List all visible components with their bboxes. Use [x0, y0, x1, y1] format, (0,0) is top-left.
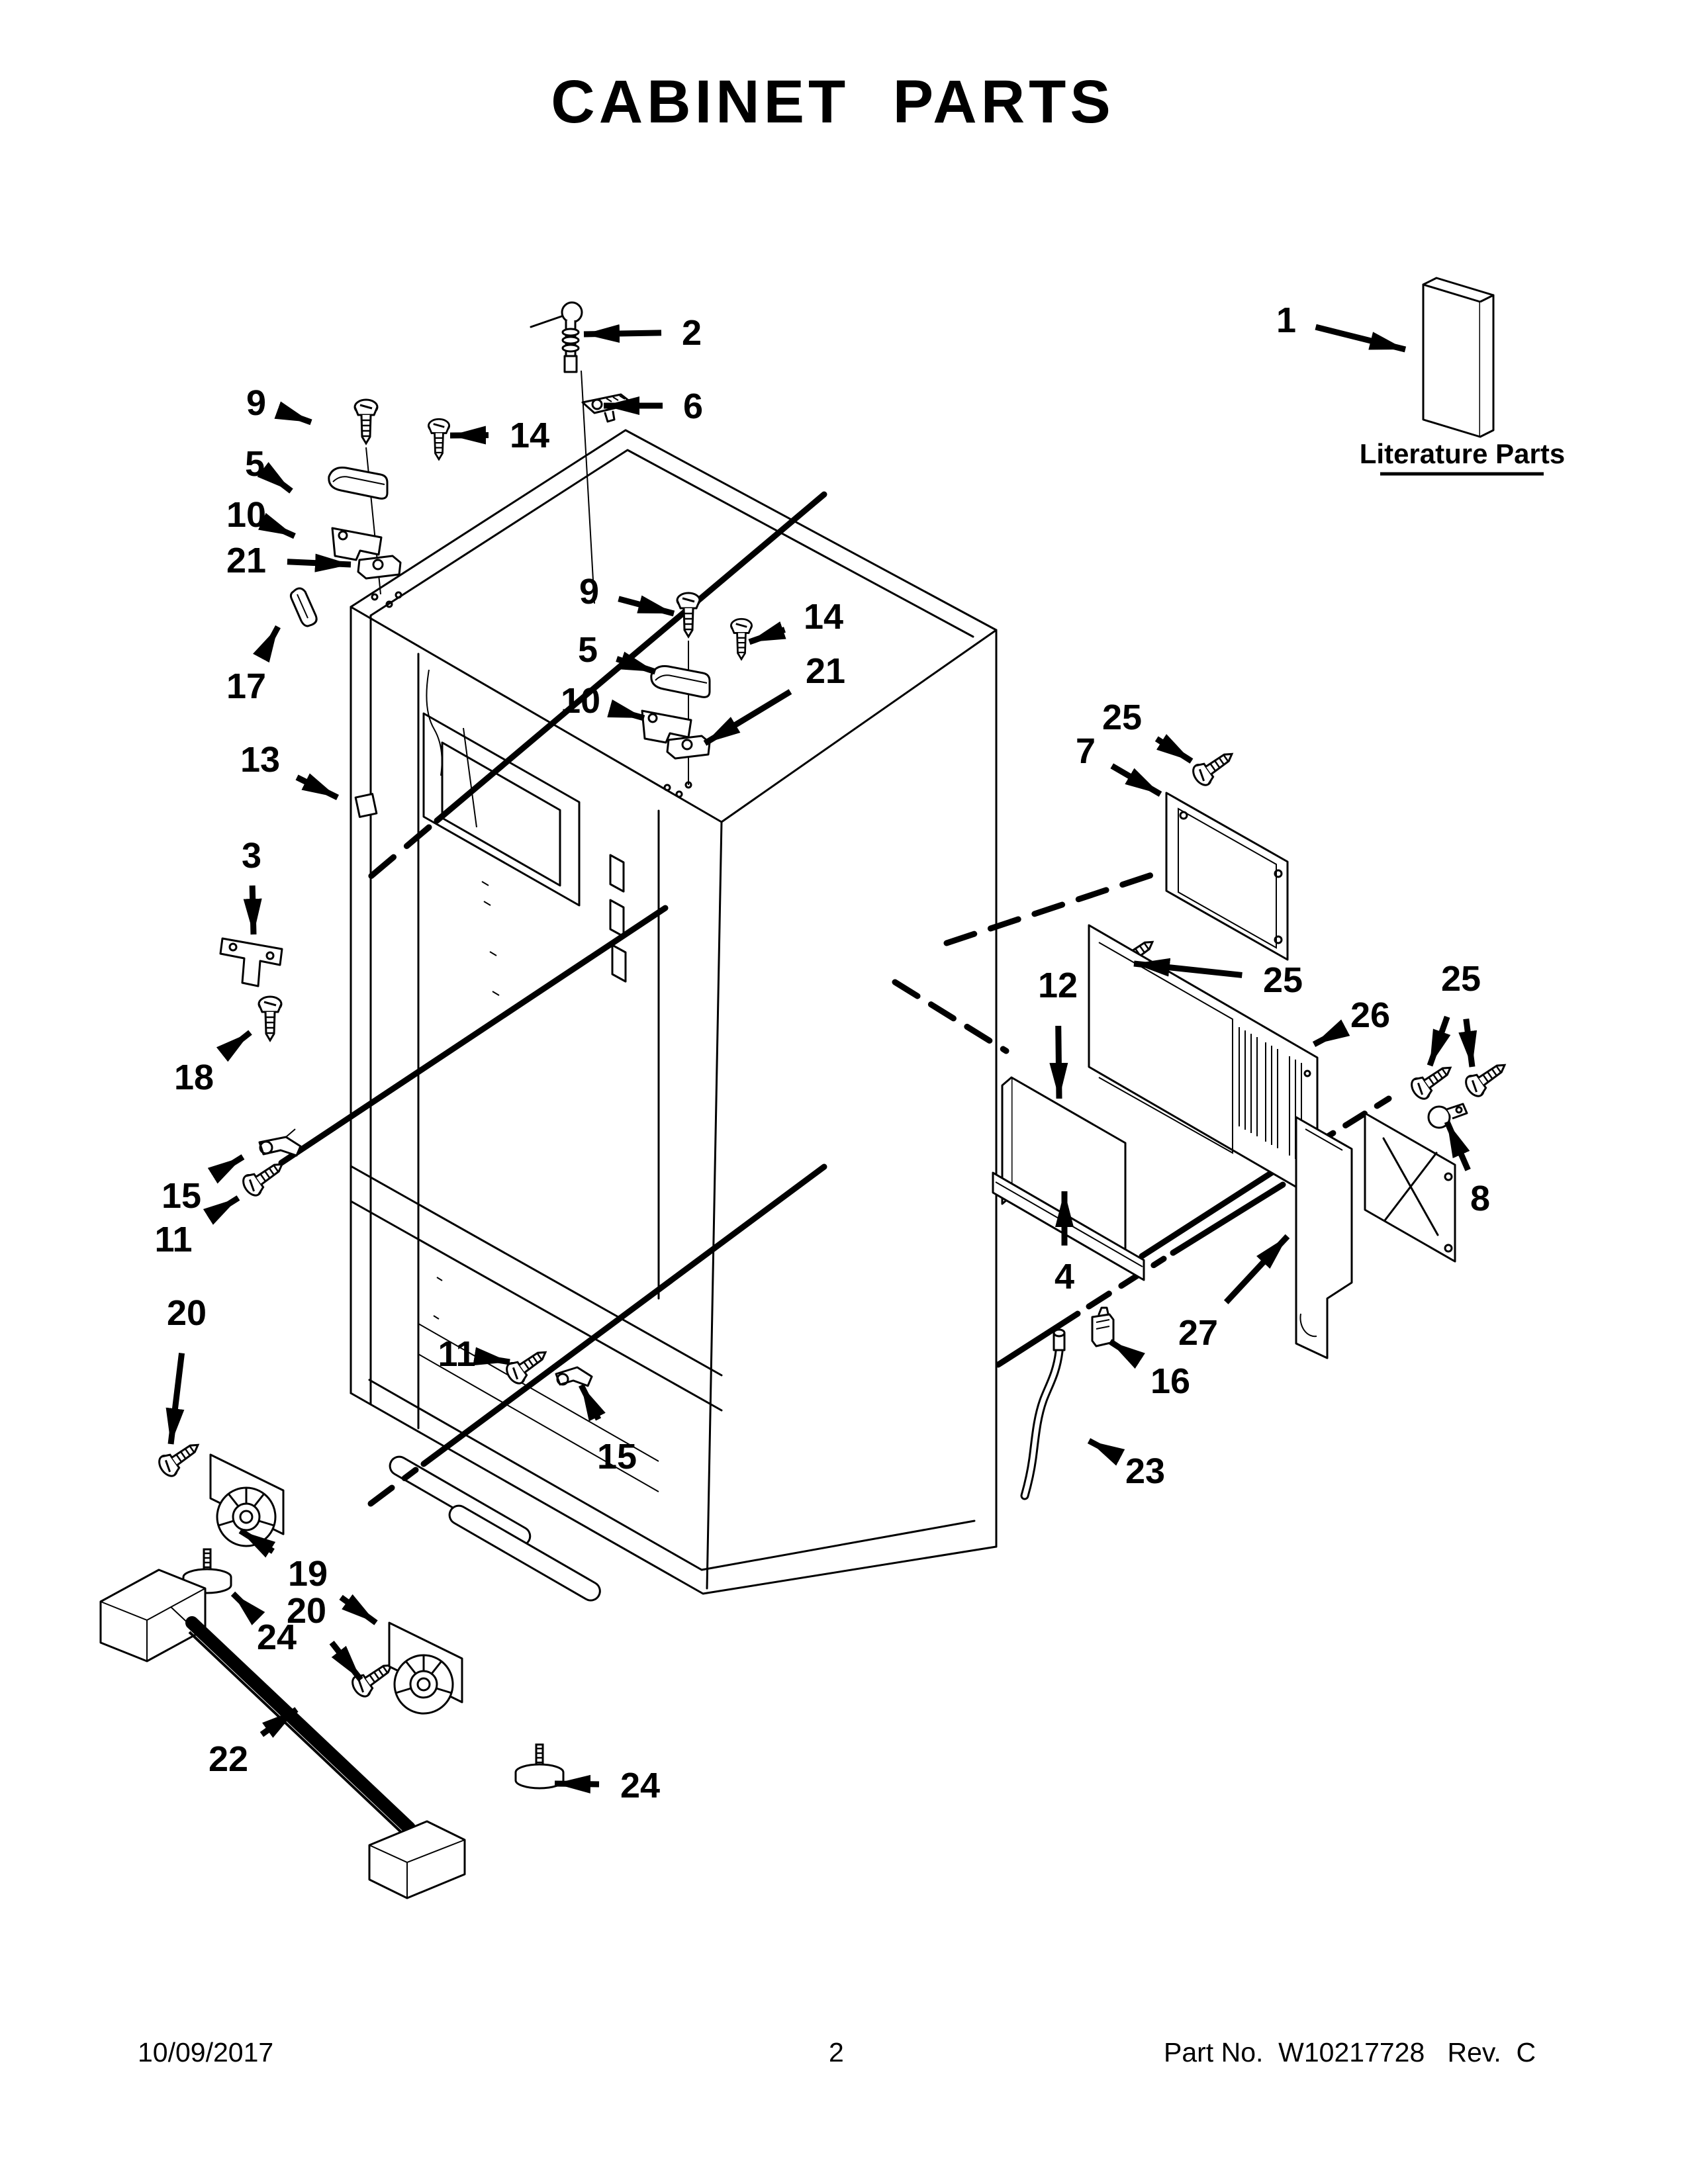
callout-number-10: 10: [226, 495, 266, 535]
hinge-cover-icon: [651, 666, 710, 698]
screw-icon: [259, 997, 281, 1040]
callout-number-2: 2: [682, 313, 702, 353]
callout-arrow-2: [584, 333, 661, 334]
callout-arrow-11: [208, 1198, 238, 1217]
water-tank-assembly: [424, 670, 579, 905]
bracket-plate-icon: [220, 938, 282, 986]
callout-number-27: 27: [1178, 1313, 1218, 1353]
callout-number-26: 26: [1350, 995, 1390, 1035]
callout-number-10: 10: [561, 681, 600, 721]
callout-number-21: 21: [226, 541, 266, 580]
callout-number-14: 14: [510, 416, 549, 455]
callout-arrow-15: [581, 1385, 598, 1420]
mounting-bracket-icon: [1296, 1113, 1455, 1358]
callout-arrow-12: [1058, 1026, 1059, 1099]
exploded-parts-diagram: Literature Parts 12614951021171331815112…: [0, 0, 1688, 2184]
trim-cap-icon: [291, 588, 316, 626]
part-glyphs: [101, 278, 1511, 1898]
callout-arrow-27: [1226, 1236, 1288, 1302]
callout-number-11: 11: [154, 1220, 192, 1259]
callout-number-22: 22: [209, 1739, 248, 1779]
callout-number-24: 24: [620, 1766, 660, 1805]
callout-number-21: 21: [806, 651, 845, 691]
callout-number-24: 24: [257, 1617, 297, 1657]
callout-arrow-24: [555, 1784, 599, 1784]
callout-number-13: 13: [240, 740, 280, 780]
callout-arrow-26: [1314, 1034, 1334, 1044]
screw-icon: [355, 400, 377, 443]
screw-icon: [156, 1435, 205, 1479]
callout-arrow-10: [620, 711, 644, 718]
callout-arrow-7: [1112, 766, 1160, 794]
callout-arrow-25: [1466, 1019, 1472, 1067]
callout-arrow-13: [297, 778, 338, 797]
callout-number-25: 25: [1102, 698, 1142, 737]
callout-number-11: 11: [438, 1334, 475, 1374]
callout-arrow-23: [1089, 1441, 1109, 1451]
callout-arrow-21: [705, 692, 790, 743]
callout-number-25: 25: [1441, 959, 1481, 999]
callout-number-8: 8: [1470, 1179, 1490, 1218]
callout-arrow-9: [285, 413, 311, 422]
callout-number-19: 19: [288, 1554, 328, 1594]
callout-number-5: 5: [578, 630, 598, 670]
footer-part-number: Part No. W10217728 Rev. C: [1164, 2037, 1536, 2068]
callout-arrow-24: [233, 1594, 248, 1608]
footer-page-number: 2: [829, 2037, 844, 2068]
document-page: CABINET PARTS: [0, 0, 1688, 2184]
drain-tube-icon: [1025, 1330, 1064, 1496]
support-bracket-icon: [556, 1367, 592, 1386]
callout-number-9: 9: [246, 383, 266, 423]
clip-icon: [1092, 1308, 1113, 1346]
callout-arrow-25: [1156, 739, 1192, 761]
literature-parts-label: Literature Parts: [1360, 438, 1565, 469]
callout-arrow-19: [341, 1597, 376, 1623]
callout-number-5: 5: [245, 444, 265, 484]
callout-arrow-10: [283, 531, 295, 536]
callout-number-25: 25: [1263, 960, 1303, 1000]
callout-arrow-1: [1316, 327, 1405, 349]
callout-number-12: 12: [1038, 966, 1078, 1005]
callout-number-17: 17: [226, 666, 266, 706]
callout-arrow-9: [618, 599, 674, 614]
callout-arrow-25: [1430, 1017, 1447, 1066]
literature-book-icon: [1423, 278, 1493, 437]
footer-date: 10/09/2017: [138, 2037, 273, 2068]
callout-arrow-20: [332, 1643, 361, 1680]
refrigerator-cabinet-outline: [351, 430, 996, 1604]
callout-arrow-21: [287, 562, 351, 565]
callout-number-15: 15: [162, 1176, 201, 1216]
callout-arrow-18: [226, 1032, 250, 1052]
screw-icon: [503, 1343, 552, 1387]
bracket-plate-icon: [358, 556, 400, 578]
callout-arrow-3: [252, 886, 254, 934]
callout-number-23: 23: [1125, 1451, 1165, 1491]
callout-arrow-15: [216, 1157, 243, 1173]
roller-assembly-icon: [389, 1623, 462, 1713]
callout-number-20: 20: [167, 1293, 207, 1333]
callout-arrow-17: [265, 627, 278, 649]
callout-number-16: 16: [1150, 1361, 1190, 1401]
callout-number-1: 1: [1276, 300, 1296, 340]
callout-arrow-11: [497, 1360, 510, 1362]
screw-icon: [1190, 745, 1239, 788]
callout-number-4: 4: [1055, 1257, 1074, 1297]
callout-arrow-20: [171, 1353, 182, 1444]
callout-arrow-14: [749, 629, 784, 642]
bracket-plate-icon: [667, 736, 710, 758]
callout-number-9: 9: [579, 572, 599, 612]
hinge-cover-icon: [329, 468, 387, 499]
access-panel-icon: [1166, 793, 1288, 960]
callout-number-3: 3: [242, 836, 261, 876]
callout-number-6: 6: [683, 387, 703, 426]
screw-icon: [428, 419, 449, 459]
callout-number-14: 14: [804, 597, 843, 637]
callout-arrow-5: [279, 482, 291, 491]
callout-number-7: 7: [1076, 731, 1096, 771]
support-bracket-icon: [259, 1129, 301, 1156]
callout-number-15: 15: [597, 1437, 637, 1477]
water-valve-icon: [531, 302, 582, 372]
callout-number-18: 18: [174, 1058, 214, 1097]
callout-arrow-16: [1110, 1342, 1136, 1358]
